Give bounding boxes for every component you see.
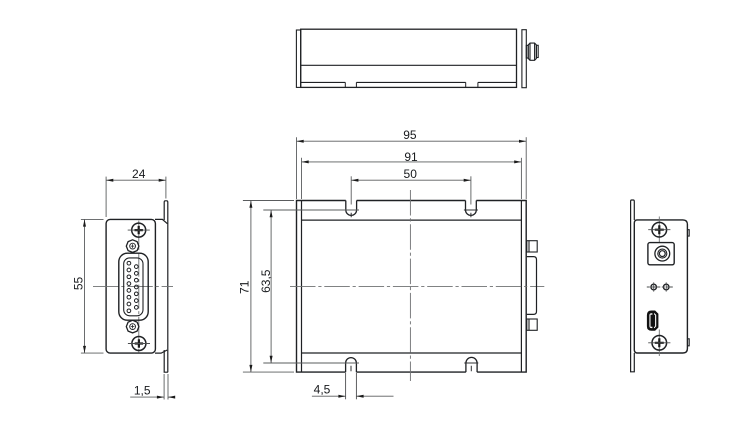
svg-text:24: 24	[132, 167, 146, 181]
svg-text:4,5: 4,5	[314, 382, 331, 396]
svg-text:91: 91	[404, 150, 418, 164]
svg-text:71: 71	[237, 280, 251, 294]
svg-text:95: 95	[403, 128, 417, 142]
svg-text:50: 50	[404, 167, 418, 181]
svg-text:55: 55	[72, 277, 86, 291]
svg-text:1,5: 1,5	[134, 383, 151, 397]
svg-text:63,5: 63,5	[259, 269, 273, 293]
